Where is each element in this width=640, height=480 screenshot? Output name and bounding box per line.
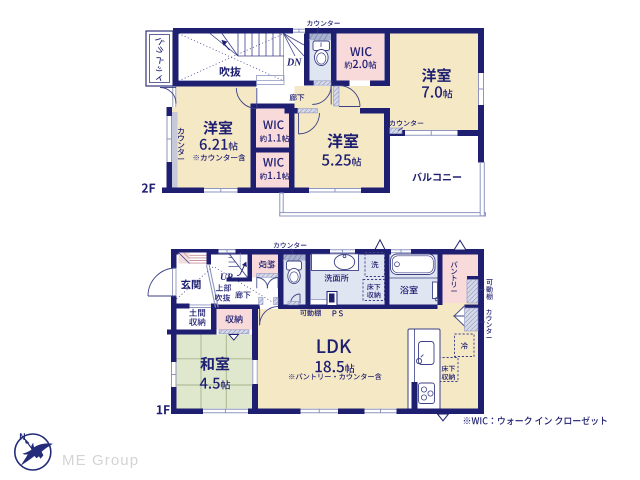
svg-text:ME Group: ME Group <box>62 452 139 469</box>
svg-text:UP: UP <box>220 273 233 283</box>
svg-text:DN: DN <box>286 58 302 69</box>
